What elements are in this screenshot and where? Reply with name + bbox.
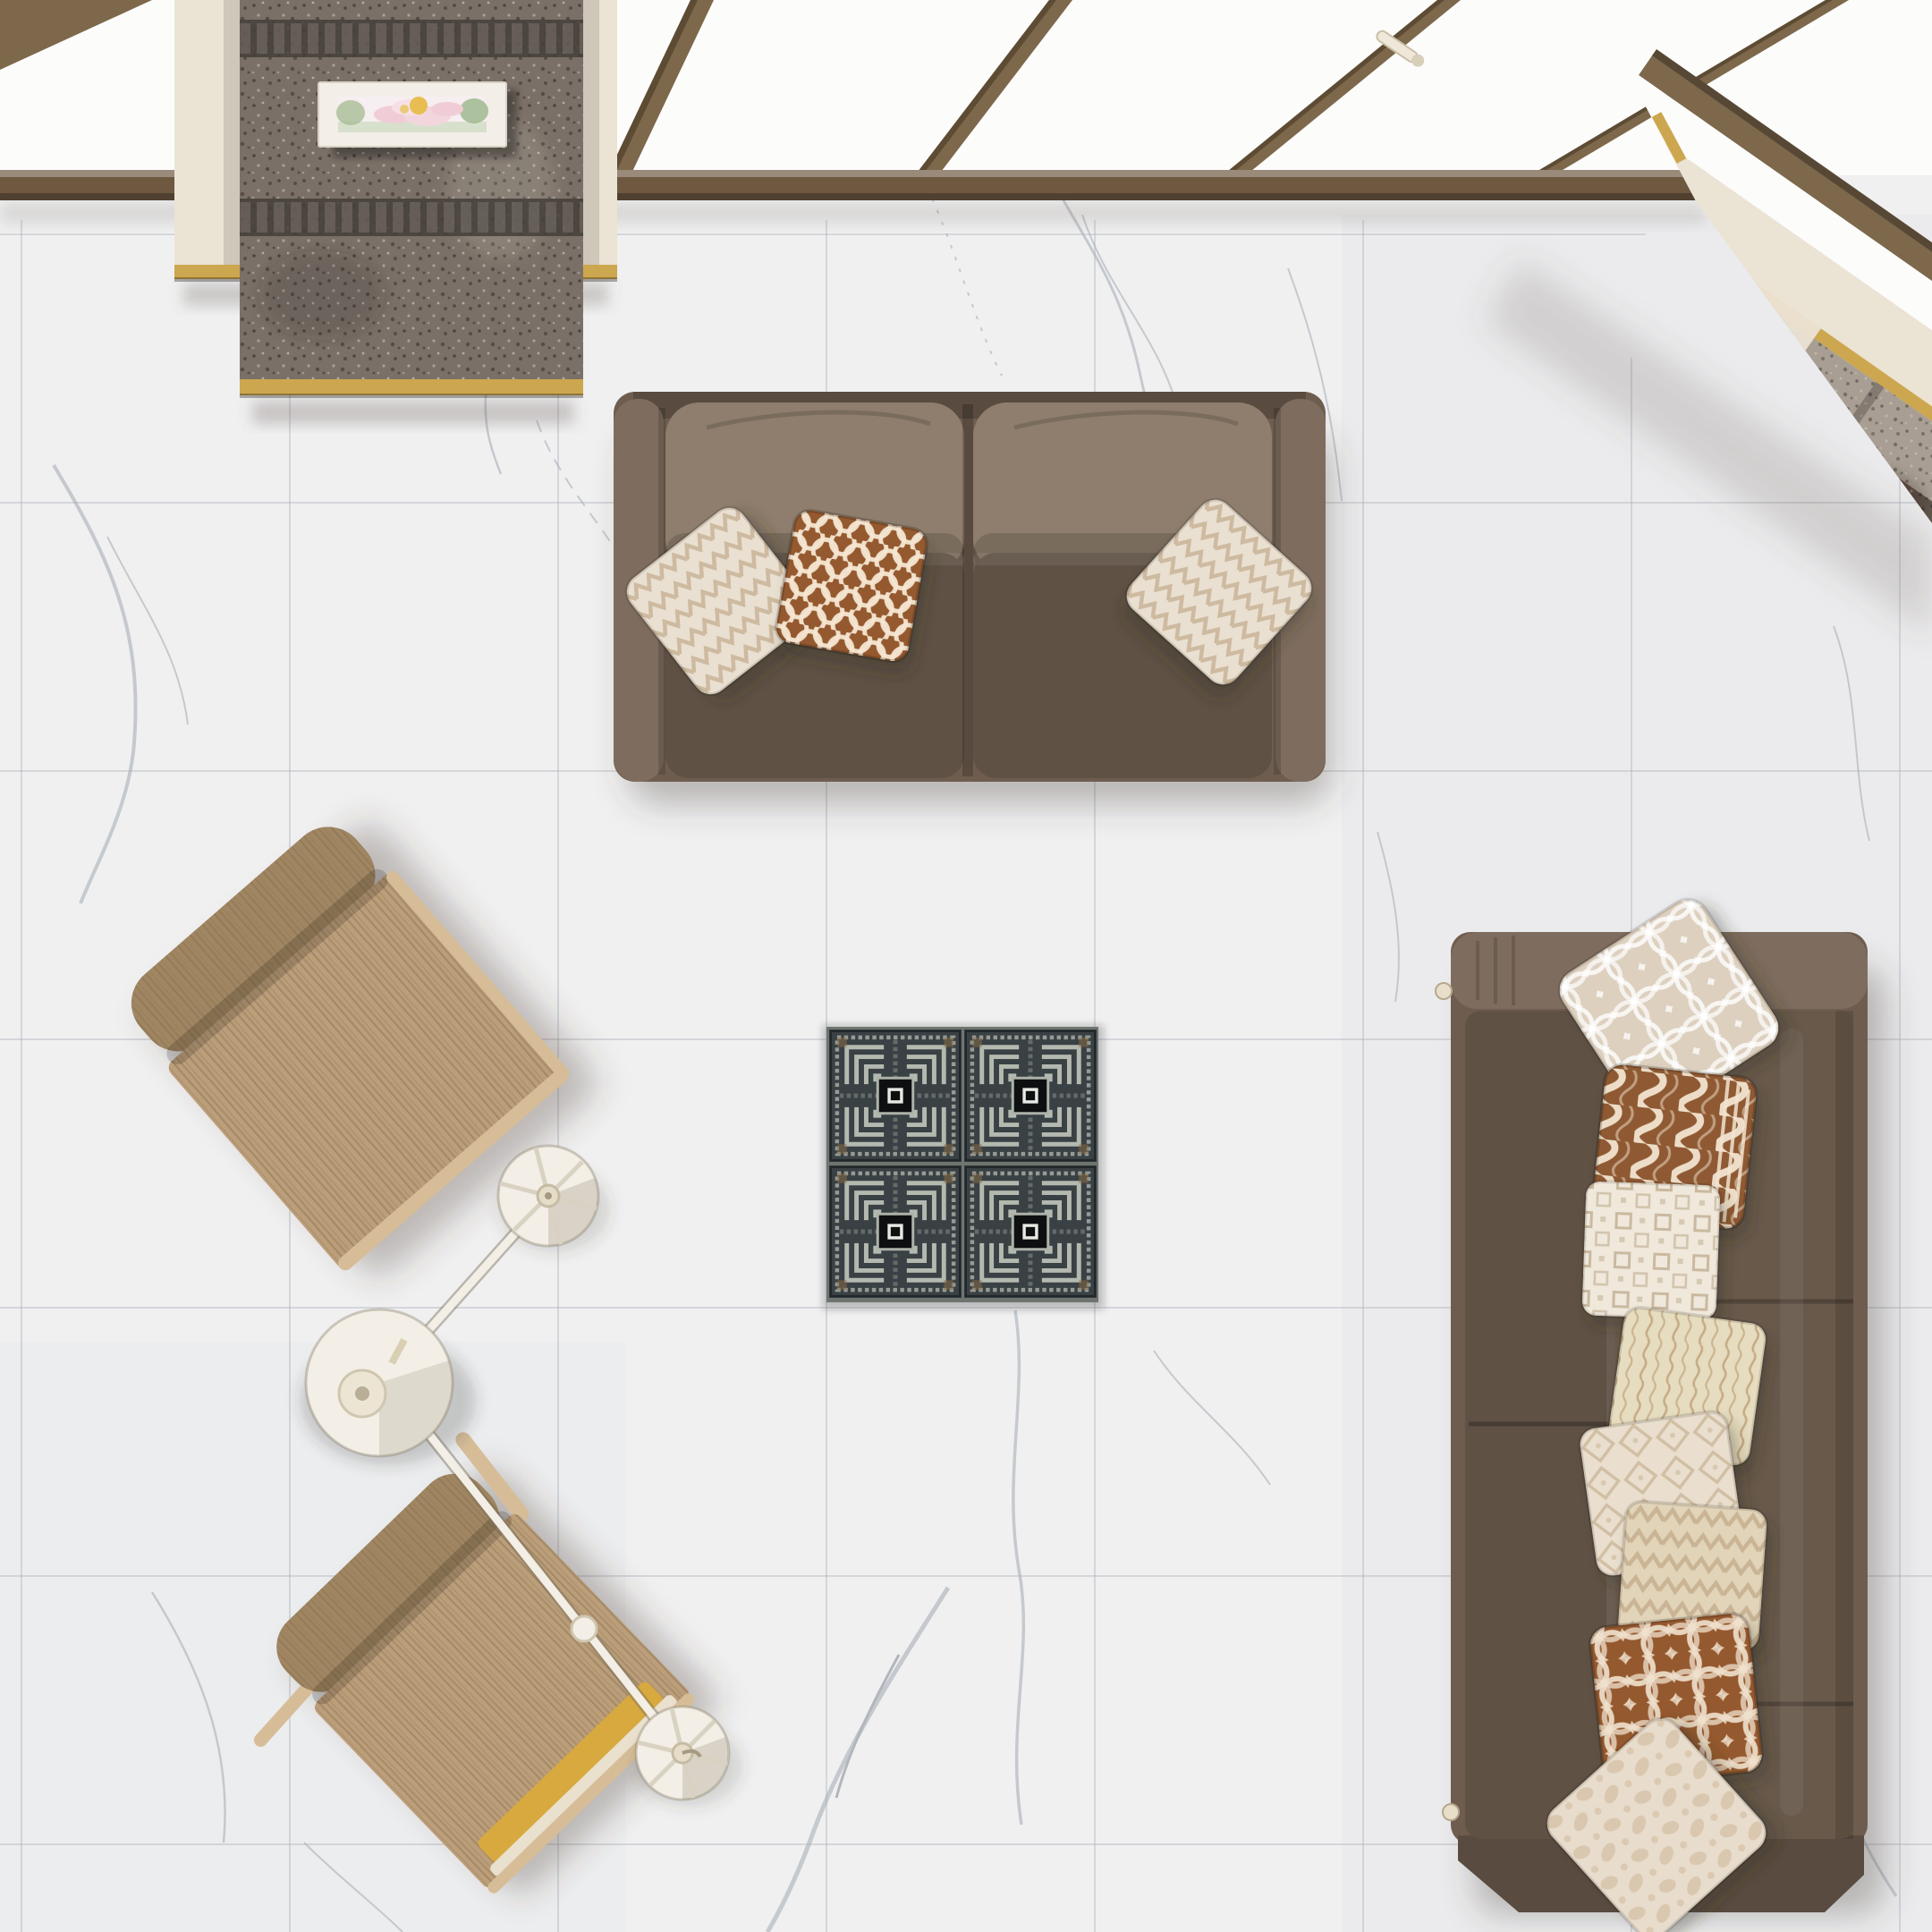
stone-pillar — [174, 0, 617, 424]
sofa-right — [1436, 887, 1885, 1932]
flower-picture — [318, 82, 517, 157]
lamp-arm-joint — [572, 1616, 597, 1641]
lamp-base-disc — [306, 1309, 453, 1456]
sofa-tassel — [1443, 1804, 1459, 1820]
sofa-tassel — [1436, 983, 1452, 999]
sofa-top — [614, 392, 1333, 805]
living-room-top-view — [0, 0, 1932, 1932]
lamp-shade-disc — [498, 1146, 598, 1246]
interior-render — [0, 0, 1932, 1932]
mosaic-tile — [964, 1030, 1097, 1162]
pillow-terracotta-scallop — [772, 508, 936, 677]
pillar-gold-base — [240, 379, 583, 395]
mosaic-tile — [829, 1165, 962, 1298]
lamp-shade-disc — [636, 1707, 729, 1800]
mosaic-tile — [964, 1165, 1097, 1298]
mosaic-tile — [829, 1030, 962, 1162]
granite-dark-band — [240, 199, 583, 236]
mosaic-inset — [823, 1025, 1104, 1309]
granite-dark-band — [240, 20, 583, 57]
